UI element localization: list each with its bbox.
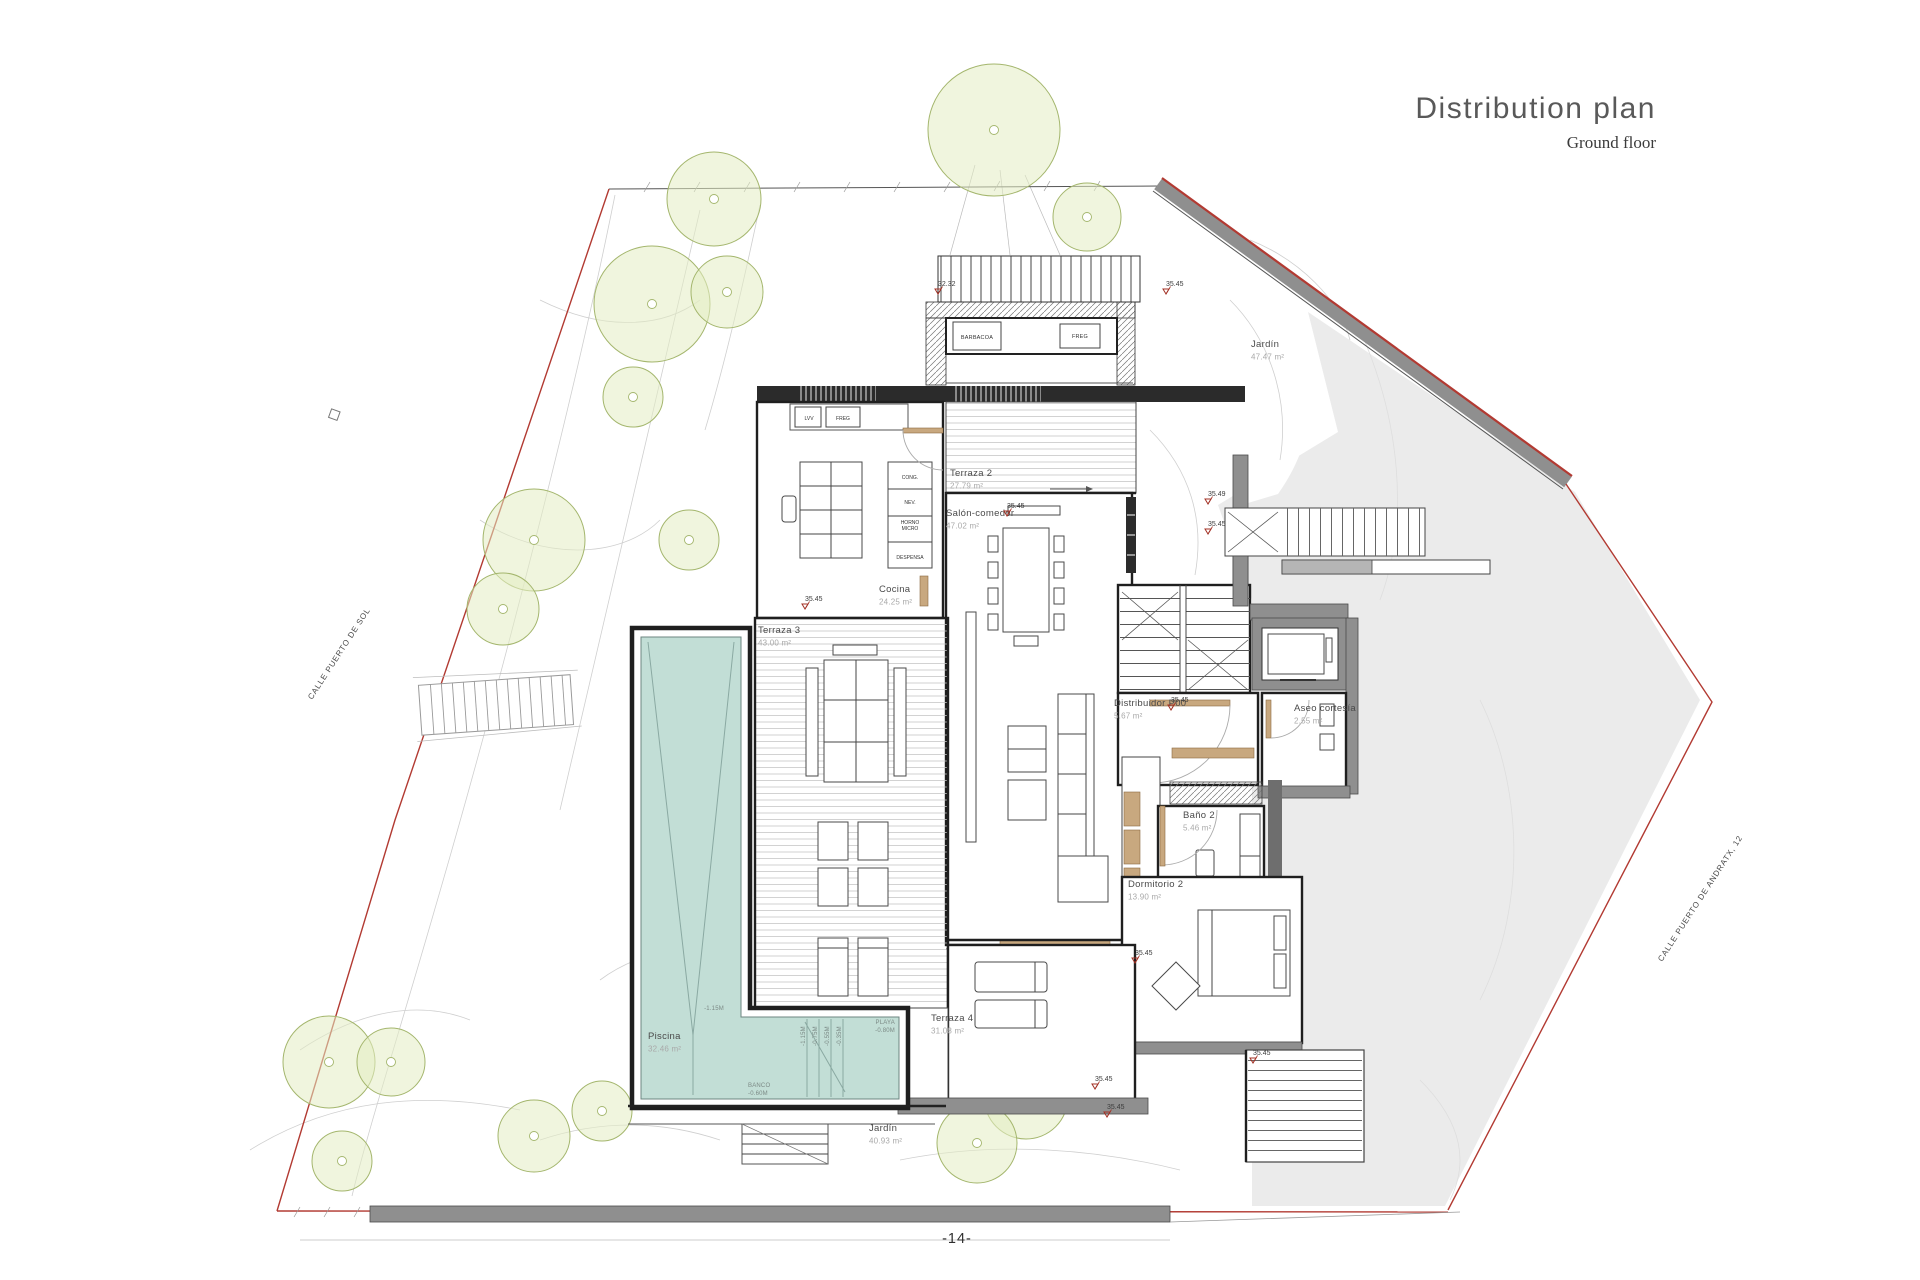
- tree-icon: [572, 1081, 632, 1141]
- street-label-right: CALLE PUERTO DE ANDRATX, 12: [1656, 834, 1744, 963]
- terraza3-deck: [755, 618, 948, 1015]
- room-label-cocina: Cocina: [879, 584, 911, 595]
- sun-lounger: [975, 962, 1047, 992]
- wardrobe: [1124, 792, 1140, 826]
- level-value: 35.49: [1208, 491, 1226, 498]
- level-value: 35.45: [1007, 503, 1025, 510]
- room-label-dormitorio2: Dormitorio 2: [1128, 879, 1183, 890]
- room-label-jardin_norte: Jardín: [1251, 339, 1279, 350]
- level-value: 32.32: [938, 281, 956, 288]
- page-title: Distribution plan: [1415, 92, 1656, 125]
- room-label-aseo: Aseo cortesía: [1294, 703, 1356, 714]
- room-label-bano2: Baño 2: [1183, 810, 1215, 821]
- room-label-terraza3: Terraza 3: [758, 625, 800, 636]
- toilet: [1196, 850, 1214, 876]
- tree-icon: [691, 256, 763, 328]
- kitchen-unit-label: FREG: [836, 416, 850, 422]
- kitchen-unit-label: NEV.: [904, 500, 915, 506]
- room-label-terraza2: Terraza 2: [950, 468, 992, 479]
- room-area-aseo: 2.55 m²: [1294, 717, 1323, 726]
- pool-beach-label: PLAYA: [876, 1020, 895, 1026]
- kitchen-door: [903, 428, 943, 433]
- title-block: Distribution plan Ground floor: [1415, 92, 1656, 152]
- floor-plan-page: Terraza 227.79 m²Salón-comedor47.02 m²Co…: [0, 0, 1920, 1280]
- aseo-door: [1266, 700, 1271, 738]
- floor-plan-canvas: Terraza 227.79 m²Salón-comedor47.02 m²Co…: [0, 0, 1920, 1280]
- room-area-jardin_norte: 47.47 m²: [1251, 353, 1284, 362]
- kitchen-unit-label: LVV: [804, 416, 814, 422]
- pool-step-depth: -0.75M: [813, 1026, 819, 1046]
- room-area-salon: 47.02 m²: [946, 522, 979, 531]
- kitchen-unit-label: DESPENSA: [896, 555, 924, 561]
- tree-icon: [357, 1028, 425, 1096]
- level-value: 35.45: [1166, 281, 1184, 288]
- kitchen-unit-label: CONG.: [902, 475, 918, 481]
- room-label-salon: Salón-comedor: [946, 508, 1014, 519]
- pool-bench-depth: -0.60M: [748, 1091, 768, 1097]
- room-area-jardin_sur: 40.93 m²: [869, 1137, 902, 1146]
- bedroom2: [1122, 877, 1302, 1054]
- tree-icon: [1053, 183, 1121, 251]
- tree-icon: [928, 64, 1060, 196]
- sofa: [1058, 694, 1094, 856]
- living-room: [946, 493, 1136, 949]
- kitchen-unit-label: HORNOMICRO: [901, 520, 920, 532]
- room-label-terraza4: Terraza 4: [931, 1013, 973, 1024]
- tree-icon: [667, 152, 761, 246]
- tree-icon: [312, 1131, 372, 1191]
- level-value: 35.45: [1107, 1104, 1125, 1111]
- room-area-terraza4: 31.08 m²: [931, 1027, 964, 1036]
- page-number: -14-: [942, 1231, 972, 1247]
- room-area-piscina: 32.46 m²: [648, 1045, 681, 1054]
- barbecue-area: [926, 256, 1140, 385]
- pool-step-depth: -0.35M: [837, 1026, 843, 1046]
- garden-steps: [413, 666, 582, 741]
- room-label-piscina: Piscina: [648, 1031, 681, 1042]
- tree-icon: [603, 367, 663, 427]
- page-subtitle: Ground floor: [1567, 133, 1657, 152]
- room-label-jardin_sur: Jardín: [869, 1123, 897, 1134]
- pool-step-depth: -0.55M: [825, 1026, 831, 1046]
- room-area-dormitorio2: 13.90 m²: [1128, 893, 1161, 902]
- pool-step-depth: -1.15M: [801, 1026, 807, 1046]
- elevator-car: [1268, 634, 1324, 674]
- level-value: 35.45: [1171, 697, 1189, 704]
- barbecue-label: FREG: [1072, 334, 1088, 340]
- washbasin: [1320, 734, 1334, 750]
- south-retaining-wall: [370, 1206, 1170, 1222]
- bath-door: [1160, 806, 1165, 866]
- sun-lounger: [975, 1000, 1047, 1028]
- barbecue-label: BARBACOA: [961, 335, 993, 341]
- room-area-terraza3: 43.00 m²: [758, 639, 791, 648]
- room-area-cocina: 24.25 m²: [879, 598, 912, 607]
- tree-icon: [467, 573, 539, 645]
- level-value: 35.45: [1253, 1050, 1271, 1057]
- room-area-terraza2: 27.79 m²: [950, 482, 983, 491]
- room-area-distribuidor: 5.67 m²: [1114, 712, 1143, 721]
- tree-icon: [937, 1103, 1017, 1183]
- tv-bench: [966, 612, 976, 842]
- tree-icon: [498, 1100, 570, 1172]
- southeast-exterior-stair: [1246, 1050, 1364, 1162]
- level-value: 35.45: [1095, 1076, 1113, 1083]
- north-facade: [757, 386, 1245, 402]
- tree-icon: [659, 510, 719, 570]
- street-label-left: CALLE PUERTO DE SOL: [306, 606, 372, 701]
- pool-garden-stair: [742, 1124, 828, 1164]
- terraza2-deck: [946, 402, 1136, 493]
- pool-bench-label: BANCO: [748, 1083, 770, 1089]
- level-value: 35.45: [805, 596, 823, 603]
- level-value: 35.45: [1208, 521, 1226, 528]
- kitchen: [757, 402, 943, 618]
- pool-beach-depth: -0.80M: [875, 1028, 895, 1034]
- dining-table: [1003, 528, 1049, 632]
- pool-depth-label: -1.15M: [704, 1006, 724, 1012]
- room-area-bano2: 5.46 m²: [1183, 824, 1212, 833]
- level-value: 35.45: [1135, 950, 1153, 957]
